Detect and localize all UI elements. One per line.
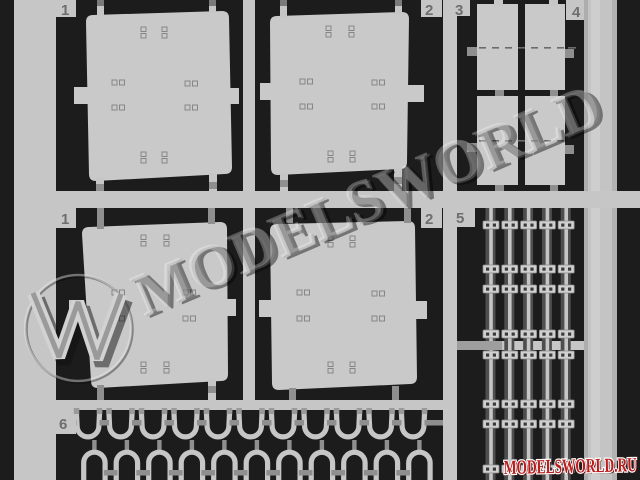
svg-text:5: 5 bbox=[456, 210, 464, 227]
svg-text:2: 2 bbox=[425, 2, 433, 19]
svg-text:MODELSWORLD.RU: MODELSWORLD.RU bbox=[504, 454, 637, 479]
svg-text:1: 1 bbox=[61, 211, 69, 228]
svg-text:4: 4 bbox=[572, 4, 581, 21]
svg-text:6: 6 bbox=[59, 416, 67, 433]
svg-text:1: 1 bbox=[61, 2, 69, 19]
svg-text:3: 3 bbox=[455, 2, 463, 19]
